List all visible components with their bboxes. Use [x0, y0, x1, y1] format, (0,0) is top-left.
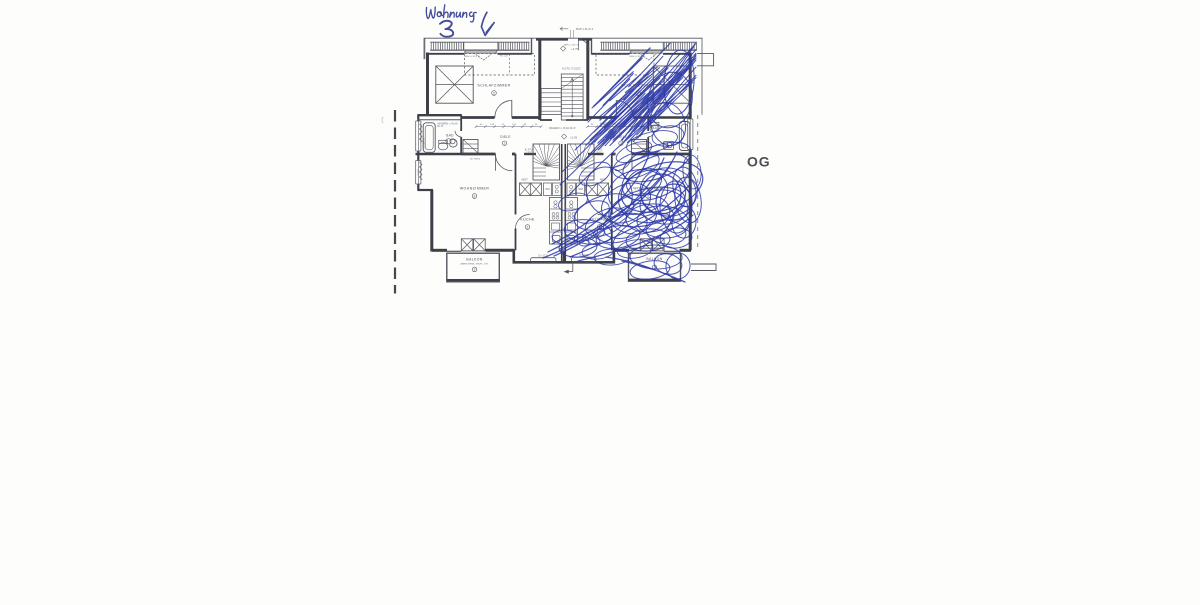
svg-text:RL 1.25: RL 1.25 — [500, 56, 508, 58]
svg-text:DD WH13: DD WH13 — [470, 158, 481, 160]
svg-text:MAUERW.: MAUERW. — [423, 137, 426, 148]
svg-text:2: 2 — [474, 194, 476, 198]
svg-text:1/2/27: 1/2/27 — [574, 66, 582, 70]
svg-text:BALKON: BALKON — [466, 257, 482, 261]
svg-text:SCHLAFZIMMER: SCHLAFZIMMER — [477, 84, 510, 88]
svg-text:3: 3 — [474, 268, 476, 272]
svg-text:KÜCHE: KÜCHE — [520, 218, 535, 222]
svg-text:2: 2 — [527, 225, 529, 229]
svg-text:+2.83: +2.83 — [570, 135, 578, 139]
svg-text:WM: WM — [578, 187, 583, 191]
svg-text:BAD: BAD — [446, 134, 454, 138]
svg-text:MAUERW. n. PLAN RL W: MAUERW. n. PLAN RL W — [549, 127, 576, 130]
svg-text:RL W: RL W — [438, 126, 444, 128]
svg-text:ANRECHENB. GRDFL. 50%: ANRECHENB. GRDFL. 50% — [461, 262, 489, 265]
svg-text:+4.75: +4.75 — [571, 47, 579, 51]
svg-text:BURT 1 RL RL 9: BURT 1 RL RL 9 — [576, 29, 594, 31]
svg-text:WOHNZIMMER: WOHNZIMMER — [460, 187, 490, 191]
svg-text:DIELE: DIELE — [500, 135, 511, 139]
svg-text:BRH +2.38 1 B: BRH +2.38 1 B — [465, 56, 480, 58]
svg-text:OG: OG — [747, 154, 770, 170]
svg-text:2: 2 — [493, 91, 495, 95]
svg-text:2: 2 — [504, 141, 506, 145]
svg-text:WM: WM — [545, 187, 550, 191]
svg-text:17/17: 17/17 — [526, 151, 533, 154]
svg-text:PV/PK: PV/PK — [418, 168, 420, 175]
svg-text:ABST: ABST — [521, 179, 528, 182]
svg-text:N.STG 17: N.STG 17 — [562, 66, 574, 70]
svg-text:MAUERW. n. PLAN: MAUERW. n. PLAN — [438, 122, 458, 125]
svg-text:17/17: 17/17 — [596, 151, 603, 154]
svg-text:BRH +2.38 1 B: BRH +2.38 1 B — [564, 45, 579, 47]
svg-text:BAD: BAD — [652, 126, 660, 130]
